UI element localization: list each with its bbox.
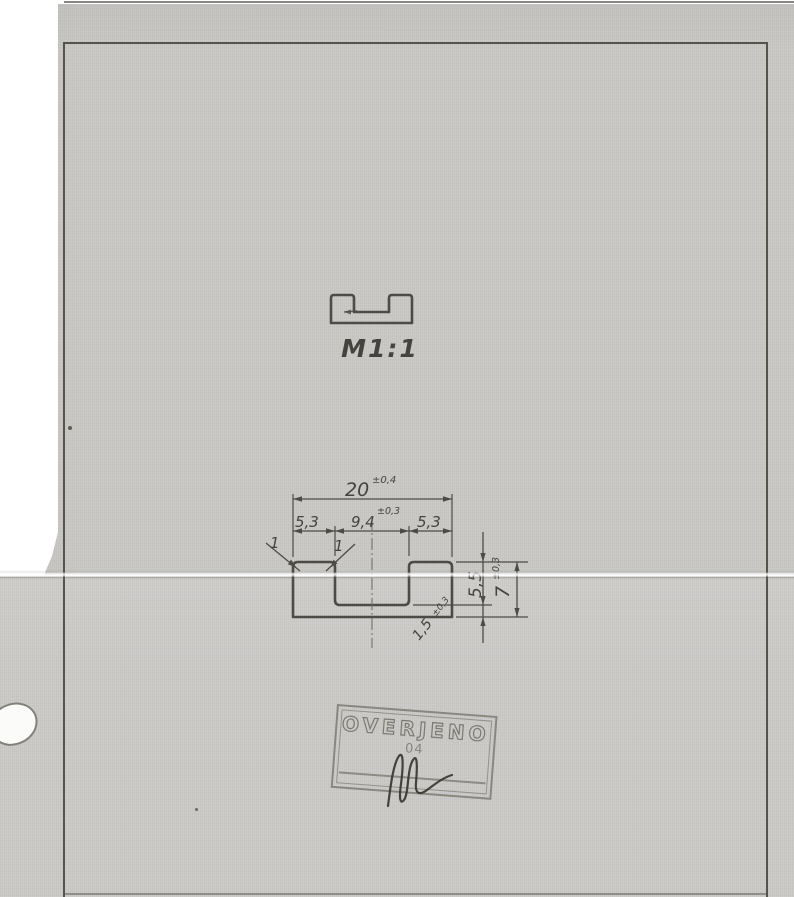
dim-chamfer-left: 1 (270, 534, 280, 552)
signature (372, 744, 482, 824)
arrow (443, 528, 452, 533)
dim-total-height: 7 (492, 586, 514, 598)
arrow (514, 608, 519, 617)
dim-base-thickness: 1,5 (410, 616, 436, 643)
dim-groove-width-tol: ±0,3 (377, 506, 400, 517)
arrow (480, 553, 485, 562)
dim-flange-left: 5,3 (295, 513, 319, 531)
arrow (480, 617, 485, 626)
arrow (400, 528, 409, 533)
dim-total-width: 20 (345, 479, 369, 501)
profile-outline (331, 295, 412, 323)
arrow (293, 496, 302, 501)
signature-stroke (388, 755, 452, 806)
profile-notch-arrow (344, 310, 351, 315)
arrow (326, 528, 335, 533)
dim-groove-width: 9,4 (351, 513, 375, 531)
dim-chamfer-right: 1 (334, 537, 344, 555)
dim-total-width-tol: ±0,4 (372, 475, 396, 486)
paper-fold-crease (0, 570, 794, 579)
dim-base-thickness-tol: ±0,3 (430, 595, 452, 619)
arrow (335, 528, 344, 533)
scale-label: M1:1 (341, 334, 419, 363)
dim-flange-right: 5,3 (417, 513, 441, 531)
arrow (443, 496, 452, 501)
